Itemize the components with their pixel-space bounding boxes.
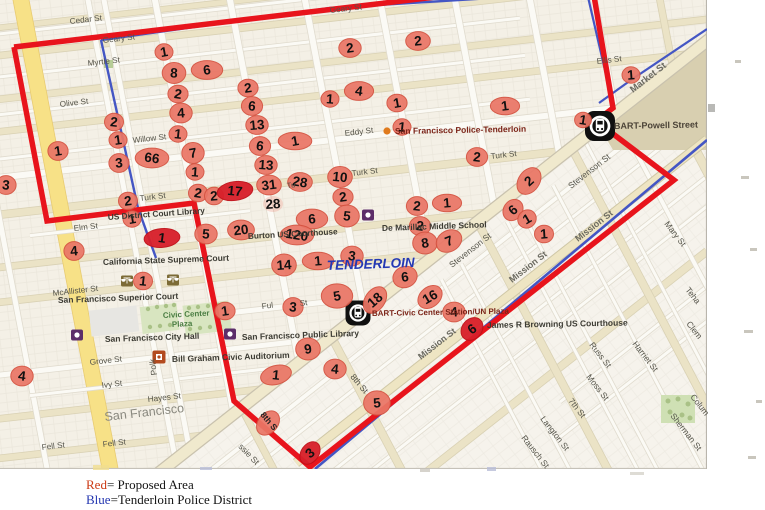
svg-text:Red= Proposed Area: Red= Proposed Area	[86, 477, 194, 492]
svg-text:28: 28	[265, 196, 282, 212]
svg-text:31: 31	[261, 177, 278, 194]
svg-text:66: 66	[144, 150, 161, 167]
svg-text:2: 2	[472, 149, 481, 165]
svg-text:2: 2	[210, 188, 219, 203]
svg-text:10: 10	[332, 169, 349, 185]
svg-text:Ful: Ful	[261, 301, 273, 311]
svg-text:Tu: Tu	[286, 180, 295, 190]
svg-text:17: 17	[227, 183, 244, 199]
svg-text:Plaza: Plaza	[172, 319, 193, 329]
svg-text:14: 14	[276, 257, 293, 273]
svg-text:2: 2	[412, 198, 421, 214]
svg-text:BART-Powell Street: BART-Powell Street	[614, 120, 698, 131]
svg-text:13: 13	[249, 117, 266, 133]
svg-text:2: 2	[414, 33, 423, 49]
svg-text:2: 2	[109, 114, 118, 130]
svg-text:TENDERLOIN: TENDERLOIN	[327, 255, 415, 273]
svg-text:13: 13	[258, 157, 275, 173]
svg-text:Polk: Polk	[147, 358, 159, 376]
svg-text:Blue=Tenderloin Police Distric: Blue=Tenderloin Police District	[86, 492, 252, 507]
